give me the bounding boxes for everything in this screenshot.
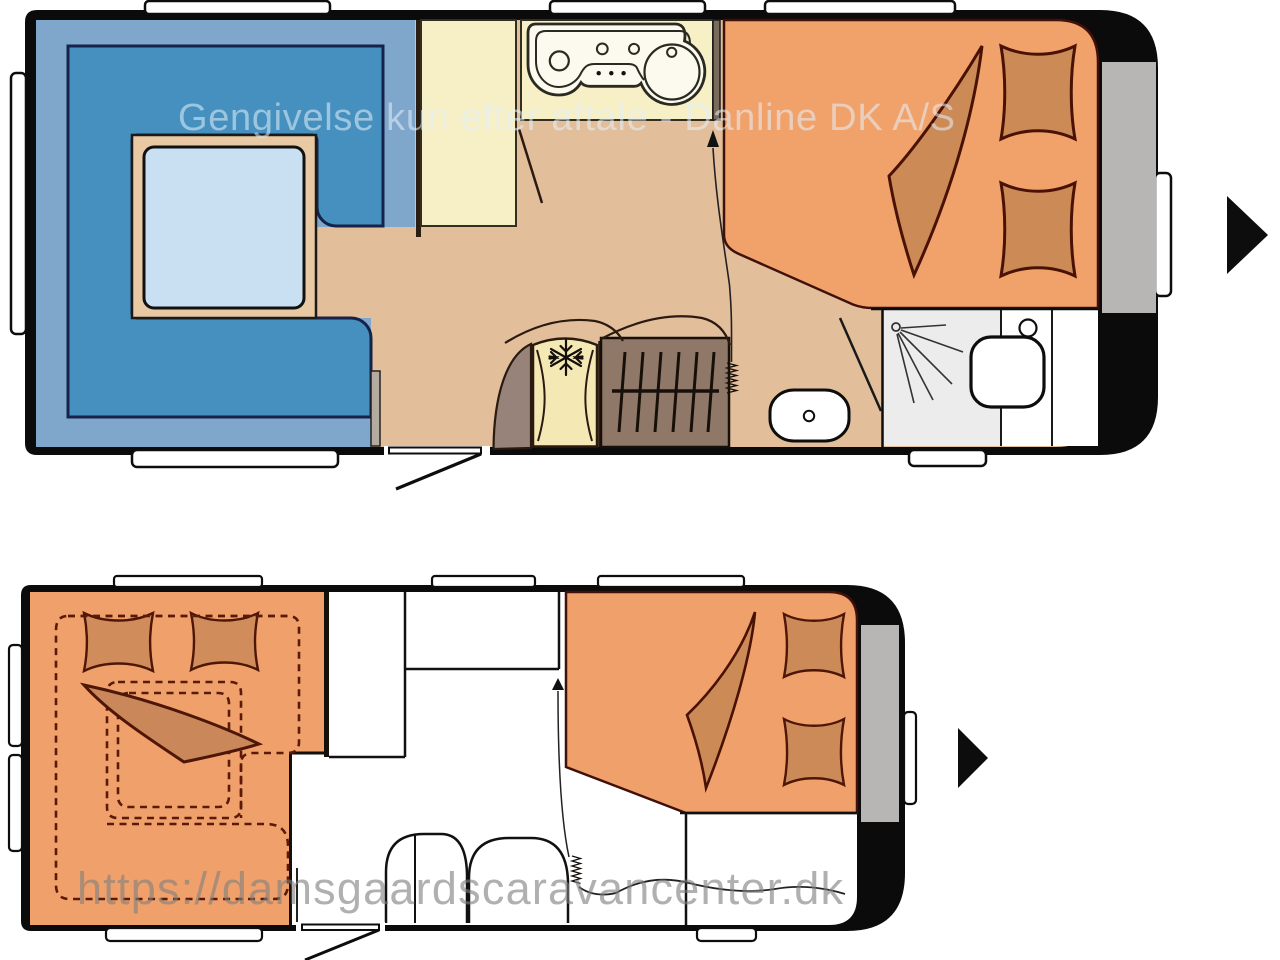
svg-text:https://damsgaardscaravancente: https://damsgaardscaravancenter.dk: [77, 863, 844, 914]
svg-text:Gengivelse kun efter aftale -: Gengivelse kun efter aftale - Danline DK…: [178, 97, 955, 139]
